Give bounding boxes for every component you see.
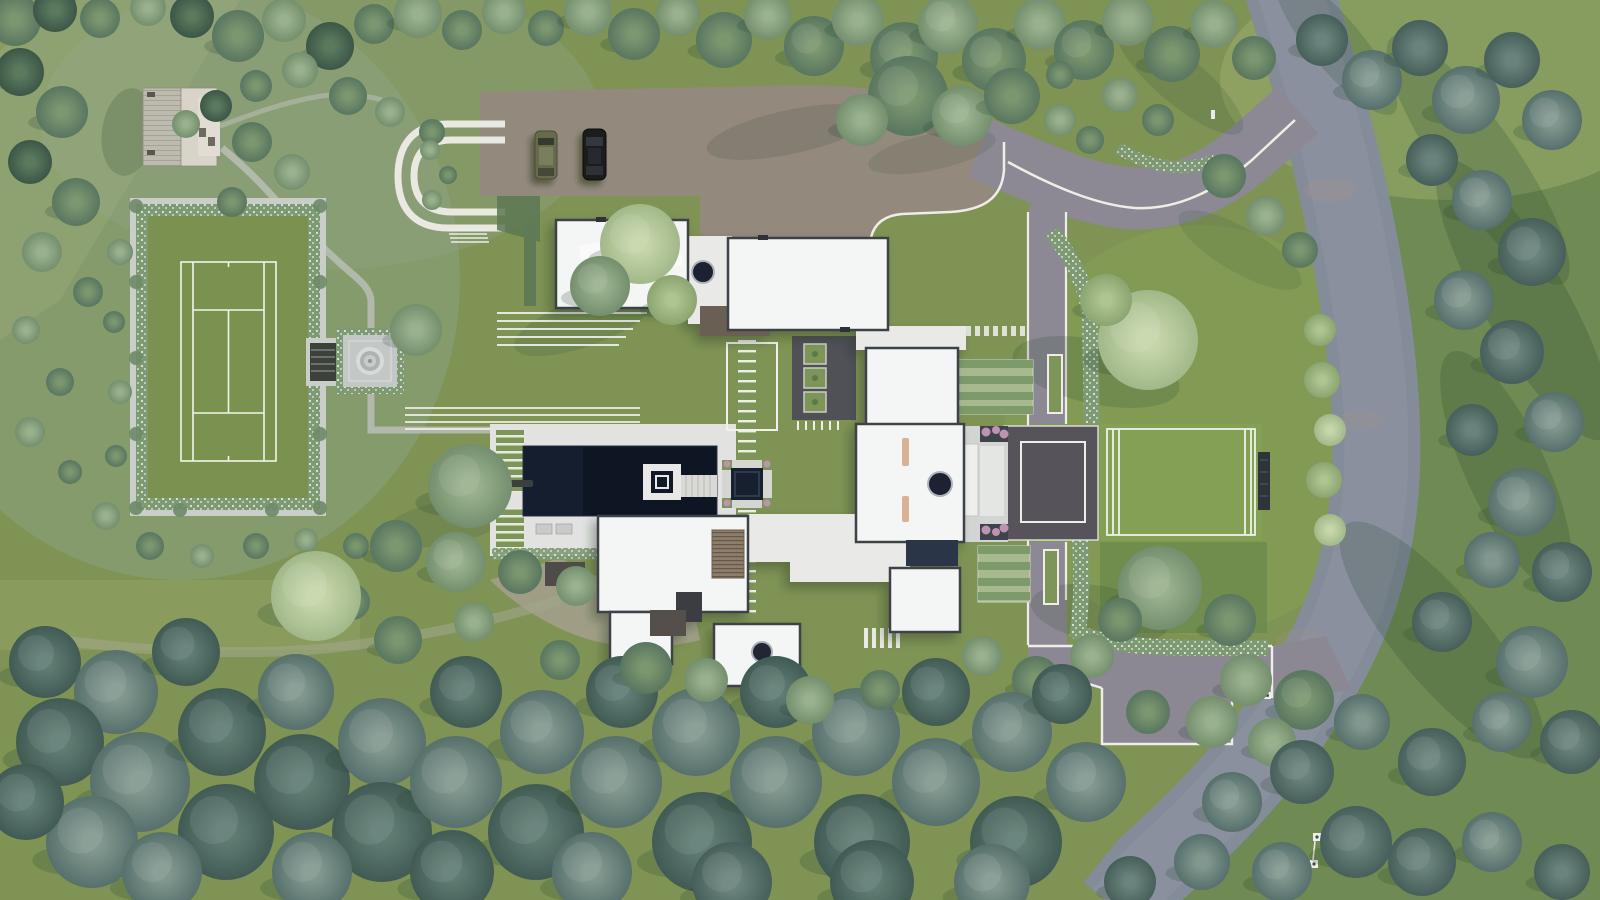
tree xyxy=(294,528,318,552)
tree xyxy=(105,445,127,467)
roof-chimney-slot xyxy=(902,438,909,466)
black-car xyxy=(583,129,606,180)
suv-car xyxy=(535,131,557,179)
tree xyxy=(498,550,542,594)
grass-court xyxy=(1100,424,1270,540)
vegetable-garden-south xyxy=(978,546,1030,602)
tree xyxy=(15,417,45,447)
garage-hedge-wall xyxy=(524,224,536,306)
tree xyxy=(540,640,580,680)
drive-planter-strip xyxy=(1048,355,1062,413)
tree xyxy=(1246,196,1286,236)
pergola-roof xyxy=(712,530,744,578)
tree xyxy=(92,502,120,530)
pool-island-core xyxy=(651,471,673,493)
southeast-wing-roof xyxy=(890,568,960,632)
tree xyxy=(262,0,306,42)
sport-court xyxy=(1004,426,1098,540)
tree xyxy=(1046,61,1074,89)
deck-planter xyxy=(147,150,155,155)
tree xyxy=(684,658,728,702)
ladder-path-north xyxy=(738,340,756,458)
tree xyxy=(420,140,440,160)
glazed-roof xyxy=(906,540,958,566)
site-plan-canvas xyxy=(0,0,1600,900)
tree xyxy=(172,110,200,138)
tree xyxy=(217,187,247,217)
tree xyxy=(375,97,405,127)
tree xyxy=(136,532,164,560)
tree xyxy=(1142,104,1174,136)
fire-pit-lounge xyxy=(722,460,772,508)
tree xyxy=(200,90,232,122)
tree xyxy=(1282,232,1318,268)
tree xyxy=(1304,362,1340,398)
vegetable-garden-north xyxy=(953,360,1033,414)
tree xyxy=(107,239,133,265)
car-roof xyxy=(588,148,601,164)
tree xyxy=(12,316,40,344)
tree xyxy=(240,70,272,102)
tree xyxy=(108,380,132,404)
tree xyxy=(1232,36,1276,80)
tree xyxy=(73,277,103,307)
court-bench xyxy=(1258,452,1270,510)
car-roof xyxy=(539,147,553,165)
tree xyxy=(103,311,125,333)
tree xyxy=(1306,462,1342,498)
tree xyxy=(439,166,457,184)
tree xyxy=(58,460,82,484)
lounger xyxy=(536,524,552,534)
tree xyxy=(454,602,494,642)
round-skylight xyxy=(928,472,952,496)
tree xyxy=(1314,414,1346,446)
tree xyxy=(1202,154,1246,198)
parterre-garden xyxy=(792,336,856,430)
rear-window xyxy=(586,166,603,175)
rear-window xyxy=(538,168,554,176)
tree xyxy=(860,670,900,710)
pool-bridge xyxy=(681,475,717,497)
deck-planter xyxy=(147,92,155,97)
entry-terrace xyxy=(962,426,1009,542)
tree xyxy=(1076,126,1104,154)
court-pavilion xyxy=(310,343,336,381)
deck-chair xyxy=(208,137,215,146)
road-dirt-patch xyxy=(1304,178,1356,202)
tree xyxy=(232,122,272,162)
tree xyxy=(22,232,62,272)
tree xyxy=(528,10,564,46)
charcoal-canopy xyxy=(650,610,686,636)
tree xyxy=(556,566,596,606)
tree xyxy=(1044,104,1076,136)
tree xyxy=(1098,598,1142,642)
tree xyxy=(46,368,74,396)
tree xyxy=(190,544,214,568)
round-skylight xyxy=(692,261,714,283)
tree xyxy=(243,533,269,559)
tree xyxy=(442,10,482,50)
drive-planter-strip xyxy=(1044,550,1058,604)
tree xyxy=(422,190,442,210)
roof-chimney-slot xyxy=(902,496,909,522)
tree xyxy=(1314,514,1346,546)
north-wing-roof xyxy=(728,238,888,330)
tree xyxy=(1102,77,1138,113)
center-block-roof xyxy=(866,348,958,428)
aerial-site-plan xyxy=(0,0,1600,900)
windshield xyxy=(586,137,603,146)
tree xyxy=(962,636,1002,676)
tree xyxy=(1304,314,1336,346)
tree xyxy=(329,77,367,115)
tree xyxy=(282,52,318,88)
tennis-court xyxy=(129,197,340,517)
tree xyxy=(1126,690,1170,734)
tree xyxy=(274,154,310,190)
tree xyxy=(8,140,52,184)
deck-chair xyxy=(199,128,206,137)
lounger xyxy=(556,524,572,534)
windshield xyxy=(538,138,554,145)
